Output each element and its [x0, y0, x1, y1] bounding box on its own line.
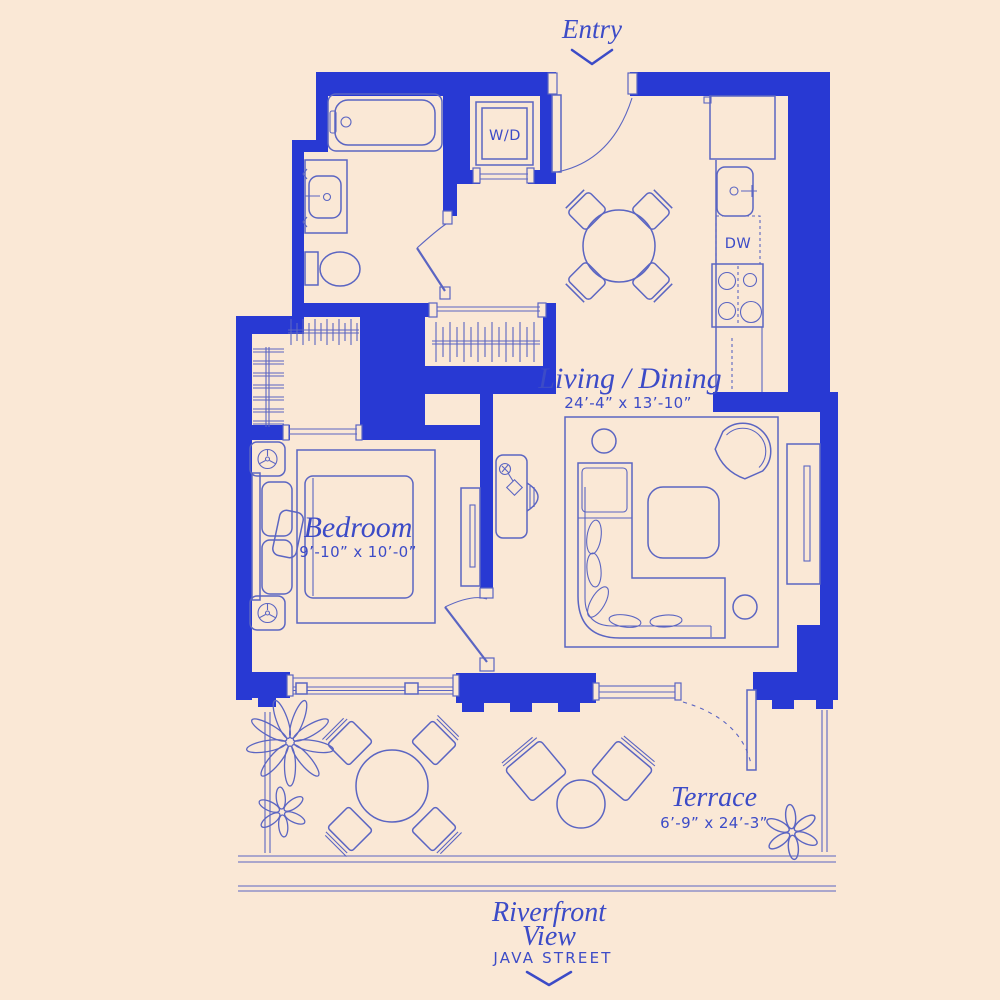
armchair — [707, 412, 783, 488]
washer-dryer-door — [473, 168, 534, 183]
dining-chair — [564, 188, 606, 230]
stove — [712, 264, 763, 327]
plant — [246, 699, 335, 786]
closet-shelves — [253, 347, 284, 427]
bathroom-door — [417, 211, 452, 299]
dishwasher-label: DW — [725, 236, 752, 252]
entry-chevron-icon — [572, 50, 612, 64]
closet-sliding-doors — [283, 425, 362, 440]
lamp-icon — [258, 450, 277, 469]
desk — [496, 455, 527, 538]
hall-closet — [429, 303, 546, 362]
kitchen-sink — [717, 167, 757, 216]
dishwasher: DW — [716, 216, 760, 264]
dining-chair — [631, 188, 673, 230]
living-room — [496, 412, 820, 647]
plant — [765, 804, 819, 860]
lamp-icon — [258, 604, 277, 623]
terrace-dimensions: 6’-9” x 24’-3” — [660, 814, 768, 832]
terrace-chair — [322, 715, 372, 765]
toilet — [305, 252, 360, 286]
coffee-table — [648, 487, 719, 558]
side-table — [733, 595, 757, 619]
terrace-label: Terrace — [671, 782, 757, 813]
washer-dryer-label: W/D — [489, 128, 521, 144]
dining-table — [583, 210, 655, 282]
tv-console — [461, 488, 480, 586]
washer-dryer-closet: W/D — [473, 102, 534, 183]
nightstand — [250, 442, 285, 476]
floor-plan: W/D DW — [0, 0, 1000, 1000]
street-chevron-icon — [527, 972, 571, 985]
sectional-sofa — [578, 463, 725, 638]
refrigerator — [704, 96, 775, 159]
closet-rod — [432, 341, 540, 344]
terrace-door — [683, 690, 756, 770]
bathtub — [328, 94, 442, 151]
living-dining-label: Living / Dining — [537, 362, 721, 395]
dining-chair — [631, 261, 673, 303]
terrace-side-table — [557, 780, 605, 828]
media-console — [787, 444, 820, 584]
terrace-chair — [322, 806, 372, 856]
riverfront-view-label-line2: View — [522, 921, 576, 952]
bedroom-closet — [253, 319, 362, 440]
entry-label: Entry — [561, 14, 622, 44]
nightstand — [250, 596, 285, 630]
floor-plan-drawing: W/D DW — [0, 0, 1000, 1000]
bedroom-door — [445, 588, 494, 671]
bedroom-window — [287, 675, 459, 696]
bedroom-dimensions: 9’-10” x 10’-0” — [299, 543, 417, 561]
lounge-chair — [500, 735, 567, 802]
desk-chair — [527, 483, 538, 511]
kitchen: DW — [704, 96, 775, 392]
living-dining-dimensions: 24’-4” x 13’-10” — [564, 394, 692, 412]
entry-door — [548, 73, 637, 172]
bedroom-label: Bedroom — [304, 511, 413, 544]
dining-chair — [564, 261, 606, 303]
living-window — [593, 683, 681, 700]
vanity-sink — [303, 160, 347, 233]
street-label: JAVA STREET — [492, 949, 612, 967]
side-table — [592, 429, 616, 453]
terrace-chair — [411, 715, 461, 765]
closet-hangers — [436, 322, 534, 362]
terrace-table — [356, 750, 428, 822]
closet-sliding-doors — [429, 303, 546, 317]
dining-set — [564, 188, 673, 303]
terrace-chair — [411, 806, 461, 856]
